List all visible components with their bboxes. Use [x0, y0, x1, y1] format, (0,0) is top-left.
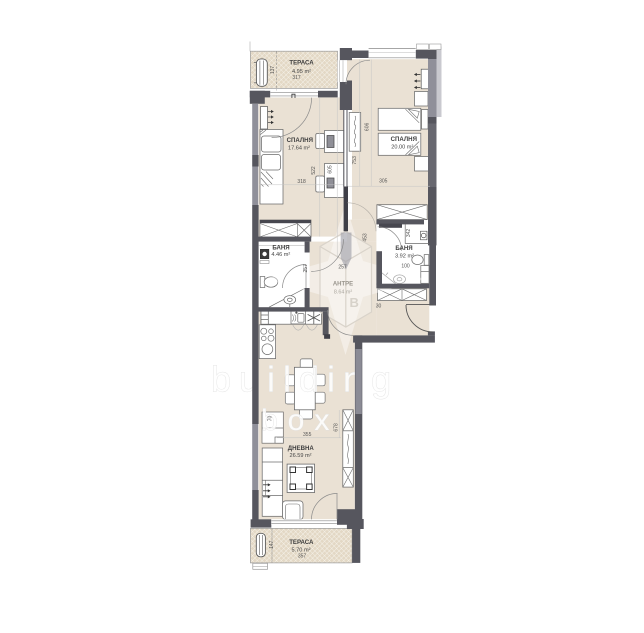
svg-text:8.64 m²: 8.64 m² [334, 290, 352, 296]
svg-text:342: 342 [406, 229, 412, 238]
svg-text:СПАЛНЯ: СПАЛНЯ [287, 137, 313, 144]
svg-text:30: 30 [376, 304, 382, 310]
svg-text:СПАЛНЯ: СПАЛНЯ [391, 136, 417, 143]
svg-text:357: 357 [298, 554, 307, 560]
svg-text:137: 137 [270, 66, 276, 75]
svg-text:147: 147 [269, 540, 275, 549]
svg-text:20.00 m²: 20.00 m² [391, 145, 413, 151]
svg-text:АНТРЕ: АНТРЕ [333, 282, 353, 288]
svg-text:522: 522 [311, 166, 317, 175]
svg-text:257: 257 [338, 265, 347, 271]
svg-text:70: 70 [268, 416, 274, 422]
svg-text:318: 318 [297, 179, 306, 185]
svg-text:ТЕРАСА: ТЕРАСА [289, 60, 314, 67]
svg-text:БАНЯ: БАНЯ [272, 245, 289, 252]
svg-text:26.59 m²: 26.59 m² [289, 453, 311, 459]
svg-text:ТЕРАСА: ТЕРАСА [289, 539, 314, 546]
svg-text:317: 317 [292, 75, 301, 81]
svg-text:4.46 m²: 4.46 m² [271, 252, 290, 258]
svg-text:building: building [211, 359, 399, 400]
svg-text:ДНЕВНА: ДНЕВНА [288, 445, 315, 452]
svg-text:678: 678 [334, 423, 340, 432]
svg-text:100: 100 [401, 263, 410, 269]
svg-text:17.64 m²: 17.64 m² [288, 146, 310, 152]
svg-text:В: В [350, 295, 359, 310]
svg-text:753: 753 [352, 156, 358, 165]
svg-text:305: 305 [379, 179, 388, 185]
svg-text:БАНЯ: БАНЯ [395, 245, 412, 252]
svg-text:355: 355 [303, 432, 312, 438]
svg-text:257: 257 [303, 264, 309, 273]
svg-text:453: 453 [362, 233, 368, 242]
svg-text:3.92 m²: 3.92 m² [395, 254, 414, 260]
svg-text:605: 605 [327, 165, 333, 174]
svg-text:606: 606 [365, 123, 371, 132]
